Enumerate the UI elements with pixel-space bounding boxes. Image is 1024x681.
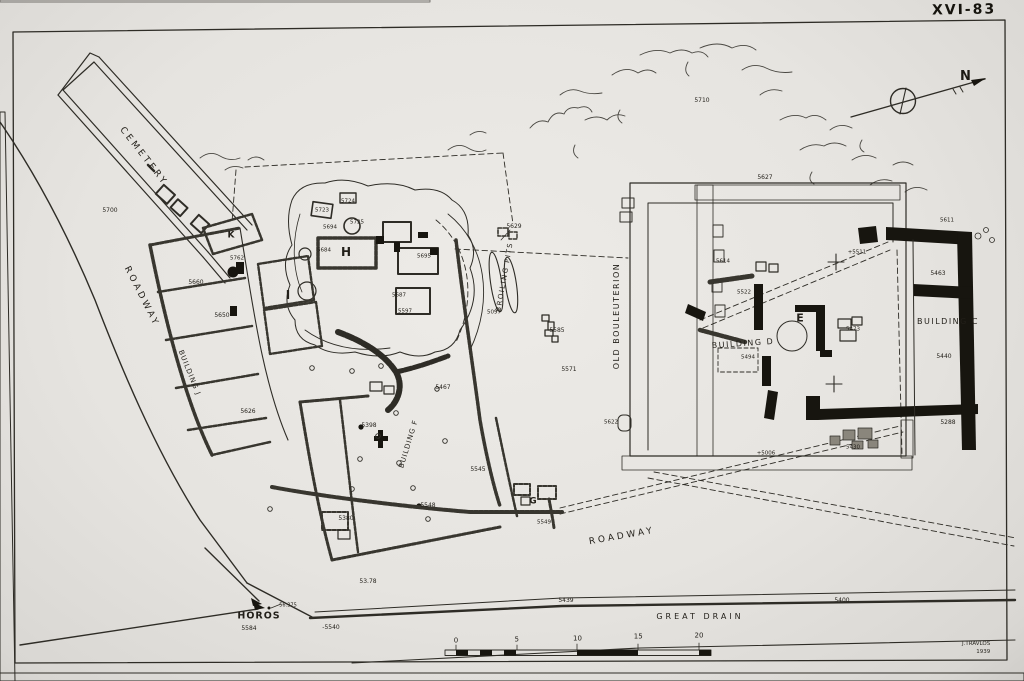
building-c	[858, 226, 995, 455]
building-h	[298, 193, 438, 314]
plate-number: XVI-83	[932, 1, 996, 18]
horos-marker	[251, 598, 281, 610]
west-roadway	[0, 122, 312, 645]
great-drain	[310, 590, 1015, 663]
signature: J.TRAVLOS 1939	[962, 640, 990, 657]
site-plan-drawing	[0, 0, 1024, 681]
photo-edges	[0, 0, 1024, 681]
excavation-plan-sheet: CEMETERY5700ROADWAYK576256605650BUILDING…	[0, 0, 1024, 681]
scale-bar	[445, 643, 711, 656]
old-bouleuterion	[618, 183, 978, 470]
cemetery-enclosure	[58, 53, 252, 283]
rocky-outcrop	[200, 44, 927, 192]
ruins-5585	[542, 315, 558, 342]
sheet-border	[13, 20, 1007, 663]
stone-cluster	[830, 428, 878, 449]
north-label: N	[960, 69, 971, 84]
building-i	[258, 256, 448, 410]
building-e	[777, 305, 832, 357]
signature-name: J.TRAVLOS	[962, 640, 990, 648]
signature-year: 1939	[962, 648, 990, 656]
ruins-5473	[838, 317, 862, 341]
central-complex	[258, 180, 500, 506]
building-f	[268, 364, 517, 560]
broiling-pits	[486, 228, 520, 313]
black-wall	[806, 396, 978, 420]
